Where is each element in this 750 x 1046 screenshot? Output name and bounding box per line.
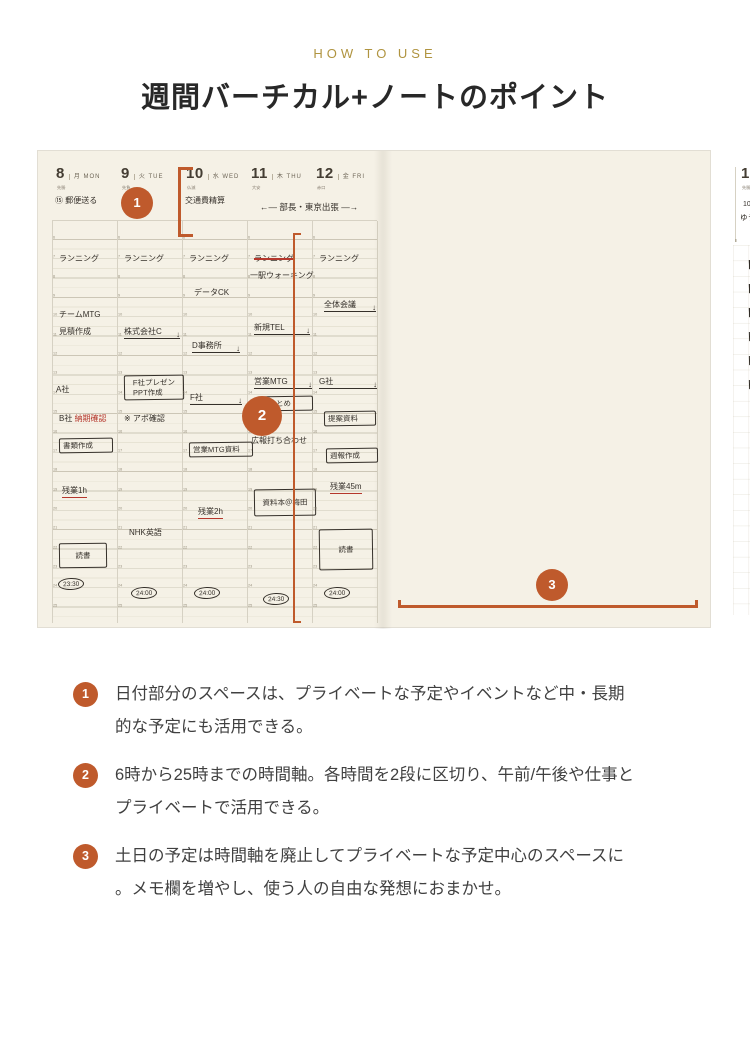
callout-circle-1: 1 bbox=[121, 187, 153, 219]
hour-label: 25 bbox=[118, 604, 122, 608]
handwritten-day-note: ⑮ 郵便送る bbox=[55, 195, 97, 206]
hour-label: 25 bbox=[183, 604, 187, 608]
planner-day-column: 11木 THU大安6789101112131415161718192021222… bbox=[247, 151, 312, 623]
hour-label: 12 bbox=[53, 352, 57, 356]
hour-label: 6 bbox=[248, 236, 250, 240]
hour-label: 7 bbox=[183, 255, 185, 259]
planner-entry: F社↓ bbox=[190, 392, 242, 405]
hour-label: 13 bbox=[183, 371, 187, 375]
hour-label: 18 bbox=[53, 468, 57, 472]
hour-label: 22 bbox=[118, 546, 122, 550]
planner-entry: 資料本＠梅田 bbox=[254, 488, 316, 516]
hour-label: 14 bbox=[313, 391, 317, 395]
tick-row bbox=[735, 239, 750, 242]
callout2-timeline-bracket bbox=[293, 233, 301, 623]
hour-label: 20 bbox=[248, 507, 252, 511]
note-number-badge: 1 bbox=[73, 682, 98, 707]
hour-label: 21 bbox=[313, 526, 317, 530]
eyebrow-how-to-use: HOW TO USE bbox=[0, 46, 750, 61]
planner-entry: 24:00 bbox=[131, 587, 158, 600]
hour-label: 8 bbox=[53, 275, 55, 279]
planner-entry: ランニング bbox=[319, 253, 359, 264]
hour-label: 17 bbox=[183, 449, 187, 453]
planner-entry: 株式会社C↓ bbox=[124, 326, 180, 339]
hour-label: 12 bbox=[183, 352, 187, 356]
planner-entry: 読書 bbox=[319, 529, 374, 570]
hour-label: 10 bbox=[248, 313, 252, 317]
note-text: 6時から25時までの時間軸。各時間を2段に区切り、午前/午後や仕事と プライベー… bbox=[115, 759, 693, 825]
hour-label: 18 bbox=[248, 468, 252, 472]
entry-text: 全体会議 bbox=[324, 299, 356, 310]
hour-label: 13 bbox=[53, 371, 57, 375]
planner-entry: 書類作成 bbox=[59, 438, 113, 454]
planner-entry: 24:00 bbox=[324, 587, 351, 600]
note-number-badge: 2 bbox=[73, 763, 98, 788]
note-item: 3土日の予定は時間軸を廃止してプライベートな予定中心のスペースに 。メモ欄を増や… bbox=[73, 840, 693, 906]
hour-label: 22 bbox=[248, 546, 252, 550]
entry-text: B社 bbox=[59, 414, 75, 423]
entry-text: G社 bbox=[319, 376, 333, 387]
hour-label: 9 bbox=[183, 294, 185, 298]
hour-label: 19 bbox=[248, 488, 252, 492]
left-page: ←— 部長・東京出張 —→ 8月 MON先勝⑮ 郵便送る678910111213… bbox=[38, 151, 383, 627]
hour-label: 8 bbox=[313, 275, 315, 279]
planner-entry: 残業1h bbox=[62, 485, 87, 498]
hour-label: 24 bbox=[53, 584, 57, 588]
planner-entry: G社↓ bbox=[319, 376, 377, 389]
hour-label: 12 bbox=[313, 352, 317, 356]
hour-label: 7 bbox=[248, 255, 250, 259]
hour-label: 10 bbox=[183, 313, 187, 317]
hour-label: 19 bbox=[313, 488, 317, 492]
planner-entry: チームMTG bbox=[59, 309, 101, 320]
hour-label: 6 bbox=[118, 236, 120, 240]
callout1-bracket bbox=[178, 167, 193, 237]
hour-label: 20 bbox=[183, 507, 187, 511]
hour-label: 14 bbox=[248, 391, 252, 395]
planner-entry: B社 納期確認 bbox=[59, 413, 107, 424]
hour-label: 14 bbox=[118, 391, 122, 395]
entry-text: F社 bbox=[190, 392, 203, 403]
hour-label: 24 bbox=[183, 584, 187, 588]
hour-label: 23 bbox=[248, 565, 252, 569]
hour-label: 19 bbox=[118, 488, 122, 492]
rokuyo-label: 赤口 bbox=[317, 184, 325, 190]
planner-entry: ランニング bbox=[59, 253, 99, 264]
planner-entry: NHK英語 bbox=[129, 527, 162, 538]
date-header: 8月 MON bbox=[56, 165, 101, 183]
hour-label: 20 bbox=[313, 507, 317, 511]
planner-day-column: 9火 TUE先負67891011121314151617181920212223… bbox=[117, 151, 182, 623]
sat-note-text: ゆうや土曜参観 bbox=[740, 212, 750, 223]
date-weekday: 金 FRI bbox=[338, 174, 365, 180]
hour-label: 7 bbox=[313, 255, 315, 259]
hour-label: 9 bbox=[313, 294, 315, 298]
date-weekday: 火 TUE bbox=[134, 174, 164, 180]
down-arrow-icon: ↓ bbox=[306, 326, 310, 337]
date-weekday: 木 THU bbox=[272, 174, 302, 180]
hour-label: 12 bbox=[118, 352, 122, 356]
hour-label: 7 bbox=[53, 255, 55, 259]
note-item: 1日付部分のスペースは、プライベートな予定やイベントなど中・長期 的な予定にも活… bbox=[73, 678, 693, 744]
hour-label: 15 bbox=[53, 410, 57, 414]
planner-photo: ←— 部長・東京出張 —→ 8月 MON先勝⑮ 郵便送る678910111213… bbox=[37, 150, 711, 628]
hour-label: 25 bbox=[248, 604, 252, 608]
hour-label: 6 bbox=[313, 236, 315, 240]
saturday-cell: 13土 SAT 先勝 10:40 ゆうや土曜参観 bbox=[737, 151, 750, 239]
hour-label: 16 bbox=[313, 430, 317, 434]
hour-label: 16 bbox=[118, 430, 122, 434]
entry-red-text: 納期確認 bbox=[75, 414, 107, 423]
hour-label: 23 bbox=[118, 565, 122, 569]
note-text: 土日の予定は時間軸を廃止してプライベートな予定中心のスペースに 。メモ欄を増やし… bbox=[115, 840, 693, 906]
hour-label: 13 bbox=[118, 371, 122, 375]
rokuyo-label: 先勝 bbox=[57, 184, 65, 190]
hour-label: 6 bbox=[53, 236, 55, 240]
hour-label: 7 bbox=[118, 255, 120, 259]
hour-label: 20 bbox=[118, 507, 122, 511]
hour-label: 23 bbox=[183, 565, 187, 569]
hour-label: 21 bbox=[118, 526, 122, 530]
hour-label: 17 bbox=[118, 449, 122, 453]
planner-entry: 全体会議↓ bbox=[324, 299, 376, 312]
page-title: 週間バーチカル+ノートのポイント bbox=[0, 74, 750, 116]
planner-entry: D事務所↓ bbox=[192, 340, 240, 353]
hour-label: 17 bbox=[53, 449, 57, 453]
hour-label: 18 bbox=[183, 468, 187, 472]
planner-entry: F社プレゼン PPT作成 bbox=[124, 374, 184, 400]
hour-label: 23 bbox=[313, 565, 317, 569]
grid-paper bbox=[733, 245, 750, 615]
planner-entry: 新規TEL↓ bbox=[254, 322, 310, 335]
planner-entry: A社 bbox=[56, 384, 69, 395]
planner-entry: ランニング bbox=[124, 253, 164, 264]
hour-label: 21 bbox=[53, 526, 57, 530]
down-arrow-icon: ↓ bbox=[236, 344, 240, 355]
planner-entry: ランニング bbox=[254, 253, 294, 264]
entry-text: 新規TEL bbox=[254, 322, 285, 333]
hour-label: 17 bbox=[313, 449, 317, 453]
planner-entry: 24:30 bbox=[263, 593, 290, 606]
down-arrow-icon: ↓ bbox=[176, 330, 180, 341]
note-number-badge: 3 bbox=[73, 844, 98, 869]
hour-label: 22 bbox=[53, 546, 57, 550]
hour-label: 13 bbox=[248, 371, 252, 375]
hour-label: 15 bbox=[118, 410, 122, 414]
entry-text: 株式会社C bbox=[124, 326, 162, 337]
hour-label: 9 bbox=[118, 294, 120, 298]
planner-entry: 週報作成 bbox=[326, 448, 378, 464]
hour-label: 22 bbox=[313, 546, 317, 550]
date-weekday: 水 WED bbox=[208, 174, 240, 180]
planner-entry: 残業45m bbox=[330, 481, 362, 494]
planner-entry: 一駅ウォーキング bbox=[250, 270, 314, 281]
hour-label: 10 bbox=[118, 313, 122, 317]
planner-entry: 提案資料 bbox=[324, 411, 376, 427]
notes-list: 1日付部分のスペースは、プライベートな予定やイベントなど中・長期 的な予定にも活… bbox=[73, 678, 693, 906]
hour-label: 19 bbox=[183, 488, 187, 492]
hour-label: 16 bbox=[183, 430, 187, 434]
hour-label: 18 bbox=[118, 468, 122, 472]
hour-label: 19 bbox=[53, 488, 57, 492]
planner-entry: 見積作成 bbox=[59, 326, 91, 337]
sat-rokuyo: 先勝 bbox=[742, 184, 750, 190]
callout-circle-3: 3 bbox=[536, 569, 568, 601]
hour-label: 21 bbox=[248, 526, 252, 530]
date-header: 9火 TUE bbox=[121, 165, 164, 183]
sat-note-time: 10:40 bbox=[743, 201, 750, 208]
planner-entry: ※ アポ確認 bbox=[124, 413, 165, 424]
hour-label: 21 bbox=[183, 526, 187, 530]
hour-label: 10 bbox=[53, 313, 57, 317]
right-page: 13土 SAT 先勝 10:40 ゆうや土曜参観 14日 SUN 友引 公園 1… bbox=[383, 151, 710, 627]
hour-label: 10 bbox=[313, 313, 317, 317]
date-header: 11木 THU bbox=[251, 165, 302, 183]
hour-label: 9 bbox=[248, 294, 250, 298]
hour-label: 8 bbox=[183, 275, 185, 279]
date-number: 12 bbox=[316, 165, 334, 182]
hour-label: 14 bbox=[183, 391, 187, 395]
hour-label: 11 bbox=[53, 333, 57, 337]
hour-label: 11 bbox=[118, 333, 122, 337]
callout3-bracket bbox=[398, 600, 698, 608]
hour-label: 20 bbox=[53, 507, 57, 511]
column-divider bbox=[735, 167, 736, 239]
hour-label: 24 bbox=[118, 584, 122, 588]
down-arrow-icon: ↓ bbox=[238, 396, 242, 407]
date-number: 9 bbox=[121, 165, 130, 182]
planner-entry: 残業2h bbox=[198, 506, 223, 519]
date-number: 11 bbox=[251, 165, 268, 182]
planner-day-column: 12金 FRI赤口6789101112131415161718192021222… bbox=[312, 151, 377, 623]
hour-label: 11 bbox=[248, 333, 252, 337]
note-item: 26時から25時までの時間軸。各時間を2段に区切り、午前/午後や仕事と プライベ… bbox=[73, 759, 693, 825]
hour-label: 15 bbox=[183, 410, 187, 414]
hour-label: 13 bbox=[313, 371, 317, 375]
planner-entry: データCK bbox=[194, 287, 229, 298]
planner-entry: 営業MTG↓ bbox=[254, 376, 312, 389]
hour-label: 25 bbox=[53, 604, 57, 608]
hour-label: 24 bbox=[313, 584, 317, 588]
date-weekday: 月 MON bbox=[69, 174, 101, 180]
hour-label: 11 bbox=[183, 333, 187, 337]
entry-text: 営業MTG bbox=[254, 376, 288, 387]
hour-label: 17 bbox=[248, 449, 252, 453]
hour-label: 24 bbox=[248, 584, 252, 588]
hour-label: 12 bbox=[248, 352, 252, 356]
planner-day-column: 8月 MON先勝⑮ 郵便送る67891011121314151617181920… bbox=[52, 151, 117, 623]
hour-label: 18 bbox=[313, 468, 317, 472]
date-header: 12金 FRI bbox=[316, 165, 365, 183]
note-text: 日付部分のスペースは、プライベートな予定やイベントなど中・長期 的な予定にも活用… bbox=[115, 678, 693, 744]
callout-circle-2: 2 bbox=[242, 396, 282, 436]
hour-label: 9 bbox=[53, 294, 55, 298]
date-number: 8 bbox=[56, 165, 65, 182]
hour-label: 11 bbox=[313, 333, 317, 337]
planner-entry: 24:00 bbox=[194, 587, 221, 600]
planner-entry: 23:30 bbox=[58, 577, 85, 590]
planner-entry: 営業MTG資料 bbox=[189, 442, 253, 458]
hour-label: 25 bbox=[313, 604, 317, 608]
hour-label: 22 bbox=[183, 546, 187, 550]
hour-label: 8 bbox=[118, 275, 120, 279]
hour-label: 23 bbox=[53, 565, 57, 569]
date-header: 10水 WED bbox=[186, 165, 239, 183]
hour-label: 15 bbox=[313, 410, 317, 414]
sat-date-number: 13 bbox=[741, 165, 750, 182]
planner-entry: ランニング bbox=[189, 253, 229, 264]
hour-label: 16 bbox=[53, 430, 57, 434]
entry-text: D事務所 bbox=[192, 340, 222, 351]
planner-entry: 読書 bbox=[59, 543, 107, 569]
rokuyo-label: 大安 bbox=[252, 184, 260, 190]
